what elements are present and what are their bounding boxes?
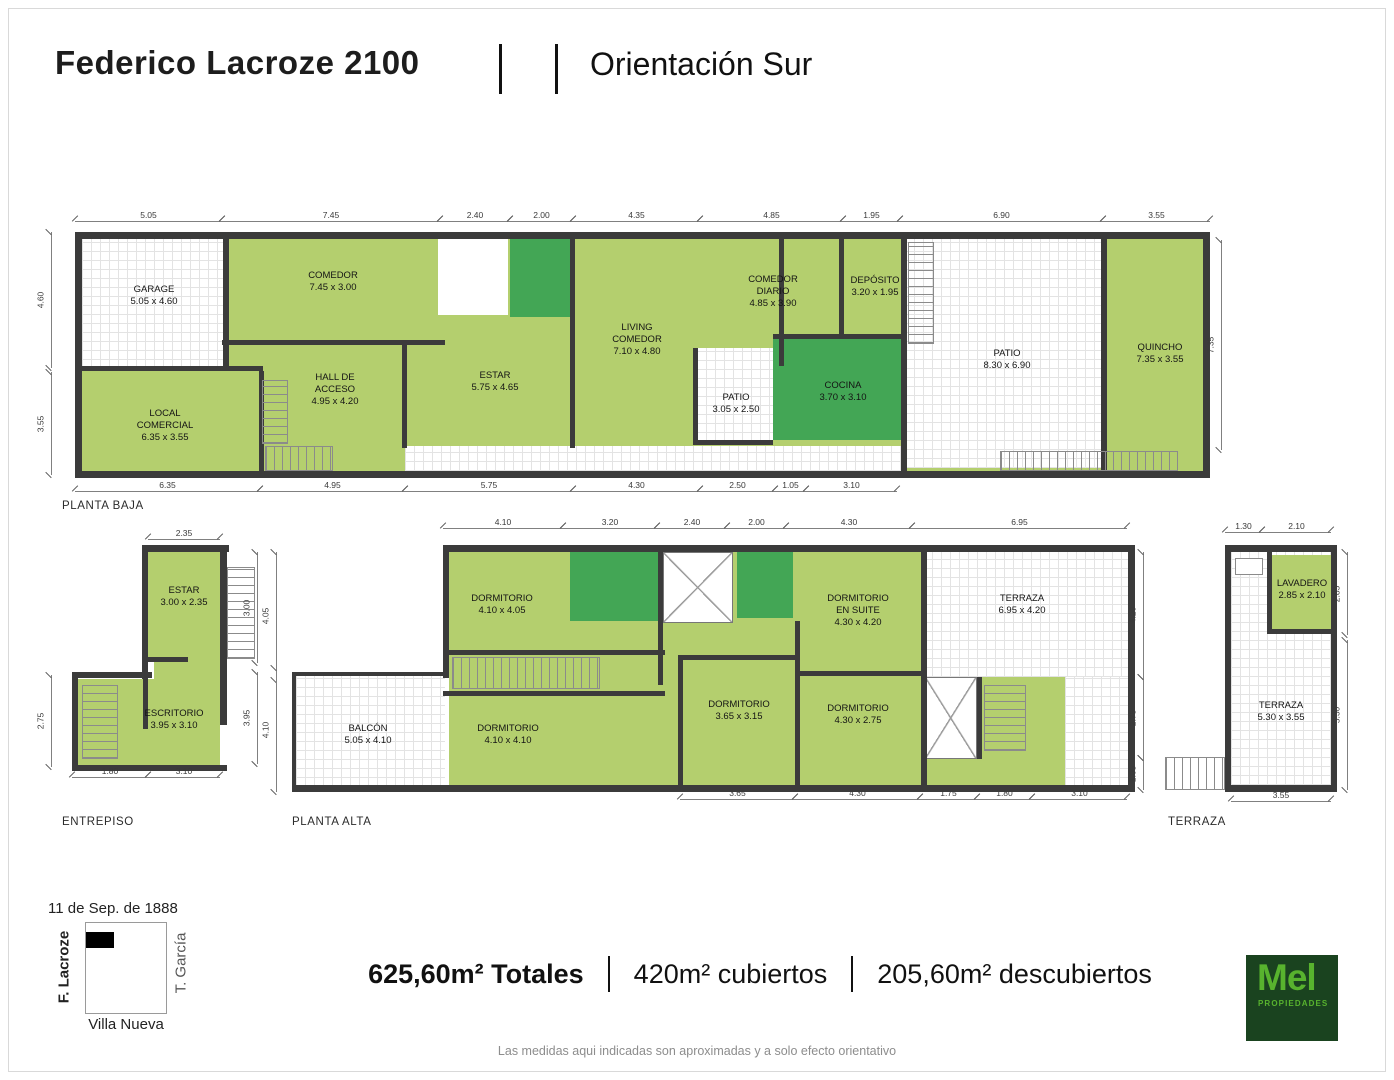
room-name: COMEDOR DIARIO xyxy=(748,274,798,298)
dimension-value: 1.80 xyxy=(102,766,119,776)
room-label-lavadero: LAVADERO2.85 x 2.10 xyxy=(1277,578,1327,602)
room-label-comedor-diario: COMEDOR DIARIO4.85 x 3.90 xyxy=(748,274,798,310)
room-dimensions: 5.30 x 3.55 xyxy=(1257,712,1304,724)
room-name: ESTAR xyxy=(471,370,518,382)
dimension-horizontal: 3.65 xyxy=(680,788,795,800)
wall xyxy=(658,545,663,685)
dimension-line xyxy=(573,491,700,492)
wall xyxy=(443,545,449,678)
dimension-horizontal: 3.55 xyxy=(1103,210,1210,222)
plan-planta-baja: GARAGE5.05 x 4.60COMEDOR7.45 x 3.00HALL … xyxy=(75,232,1210,478)
dimension-line xyxy=(563,528,657,529)
room-label-living-comedor: LIVING COMEDOR7.10 x 4.80 xyxy=(612,322,662,358)
dimension-horizontal: 1.05 xyxy=(775,480,806,492)
room-name: QUINCHO xyxy=(1136,342,1183,354)
wall xyxy=(443,545,1135,552)
room-label-cocina: COCINA3.70 x 3.10 xyxy=(819,380,866,404)
room-label-patio: PATIO8.30 x 6.90 xyxy=(983,348,1030,372)
dimension-horizontal: 3.20 xyxy=(563,517,657,529)
stairs xyxy=(262,380,288,444)
dimension-horizontal: 4.10 xyxy=(443,517,563,529)
dimension-value: 3.95 xyxy=(242,710,252,727)
plan-terraza: LAVADERO2.85 x 2.10TERRAZA5.30 x 3.55 xyxy=(1225,545,1337,792)
wall xyxy=(72,672,78,771)
stairs xyxy=(1000,451,1178,471)
plan-title-planta-baja: PLANTA BAJA xyxy=(62,500,144,512)
dimension-line xyxy=(260,491,405,492)
dimension-horizontal: 4.95 xyxy=(260,480,405,492)
dimension-value: 2.10 xyxy=(1288,521,1305,531)
dimension-line xyxy=(1103,221,1210,222)
agency-logo: Mel PROPIEDADES xyxy=(1246,955,1338,1041)
room-label-terraza: TERRAZA6.95 x 4.20 xyxy=(998,593,1045,617)
page-border-frame xyxy=(8,8,1386,1072)
dimension-value: 3.55 xyxy=(1148,210,1165,220)
dimension-line xyxy=(1143,677,1144,758)
dimension-line xyxy=(276,668,277,792)
dimension-horizontal: 3.10 xyxy=(148,766,220,778)
wall xyxy=(1267,552,1272,634)
wall xyxy=(443,691,665,696)
disclaimer-text: Las medidas aqui indicadas son aproximad… xyxy=(297,1044,1097,1058)
dimension-line xyxy=(1225,532,1262,533)
room-dimensions: 3.20 x 1.95 xyxy=(851,287,900,299)
dimension-vertical: 2.75 xyxy=(1130,677,1148,758)
dimension-line xyxy=(843,221,900,222)
dimension-line xyxy=(257,672,258,764)
room-dimensions: 7.45 x 3.00 xyxy=(308,282,358,294)
room-label-dormitorio: DORMITORIO3.65 x 3.15 xyxy=(708,699,770,723)
room-dimensions: 3.05 x 2.50 xyxy=(712,404,759,416)
dimension-value: 4.30 xyxy=(841,517,858,527)
room-name: DORMITORIO EN SUITE xyxy=(827,593,889,617)
room-dimensions: 5.75 x 4.65 xyxy=(471,382,518,394)
dimension-value: 6.90 xyxy=(993,210,1010,220)
wall xyxy=(570,239,575,448)
map-lot-marker xyxy=(86,932,114,948)
dimension-line xyxy=(1347,640,1348,790)
dimension-line xyxy=(75,221,222,222)
room-name: DORMITORIO xyxy=(471,593,533,605)
orientation-label: Orientación Sur xyxy=(590,46,812,83)
stairs xyxy=(908,242,934,344)
room-dimensions: 7.35 x 3.55 xyxy=(1136,354,1183,366)
dimension-value: 5.75 xyxy=(481,480,498,490)
dimension-value: 4.30 xyxy=(628,480,645,490)
room-dimensions: 5.05 x 4.10 xyxy=(344,735,391,747)
dimension-value: 3.55 xyxy=(36,415,46,432)
room-name: PATIO xyxy=(712,392,759,404)
room-dimensions: 4.10 x 4.05 xyxy=(471,605,533,617)
dimension-line xyxy=(920,799,977,800)
dimension-line xyxy=(51,675,52,767)
room-name: DORMITORIO xyxy=(827,703,889,715)
dimension-line xyxy=(257,552,258,663)
dimension-value: 4.85 xyxy=(763,210,780,220)
dimension-horizontal: 2.40 xyxy=(657,517,727,529)
dimension-value: 3.10 xyxy=(176,766,193,776)
dimension-vertical: 4.20 xyxy=(1130,552,1148,677)
stairs xyxy=(265,446,333,471)
dimension-horizontal: 4.85 xyxy=(700,210,843,222)
wall xyxy=(839,239,844,336)
header-divider-bar xyxy=(499,44,502,94)
shaft-area xyxy=(925,677,977,759)
wall xyxy=(148,545,229,552)
dimension-horizontal: 2.00 xyxy=(510,210,573,222)
plan-title-entrepiso: ENTREPISO xyxy=(62,816,134,828)
room-name: DEPÓSITO xyxy=(851,275,900,287)
dimension-line xyxy=(1143,758,1144,790)
patio-grid-area xyxy=(1065,677,1128,787)
room-dimensions: 3.00 x 2.35 xyxy=(160,597,207,609)
dimension-vertical: 2.85 xyxy=(1334,552,1352,635)
room-label-dormitorio: DORMITORIO4.10 x 4.10 xyxy=(477,723,539,747)
dimension-line xyxy=(51,232,52,368)
summary-divider-bar xyxy=(851,956,853,992)
dimension-line xyxy=(680,799,795,800)
room-dimensions: 7.10 x 4.80 xyxy=(612,346,662,358)
wall xyxy=(292,672,445,676)
dimension-line xyxy=(405,491,573,492)
dimension-horizontal: 6.35 xyxy=(75,480,260,492)
plan-planta-alta: DORMITORIO4.10 x 4.05DORMITORIO4.10 x 4.… xyxy=(292,545,1135,792)
room-dimensions: 3.95 x 3.10 xyxy=(145,720,204,732)
uncovered-area: 205,60m² descubiertos xyxy=(877,959,1152,990)
wall xyxy=(75,471,1210,478)
room-label-escritorio: ESCRITORIO3.95 x 3.10 xyxy=(145,708,204,732)
room-dimensions: 4.95 x 4.20 xyxy=(311,396,358,408)
room-label-estar: ESTAR5.75 x 4.65 xyxy=(471,370,518,394)
room-dimensions: 3.65 x 3.15 xyxy=(708,711,770,723)
room-dimensions: 4.10 x 4.10 xyxy=(477,735,539,747)
dimension-value: 2.40 xyxy=(684,517,701,527)
wall xyxy=(75,232,1210,239)
room-label-local-comercial: LOCAL COMERCIAL6.35 x 3.55 xyxy=(137,408,193,444)
dimension-value: 2.40 xyxy=(467,210,484,220)
dimension-line xyxy=(51,372,52,475)
dimension-line xyxy=(443,528,563,529)
dimension-value: 4.10 xyxy=(495,517,512,527)
dimension-line xyxy=(727,528,786,529)
dimension-value: 3.10 xyxy=(1071,788,1088,798)
room-name: TERRAZA xyxy=(998,593,1045,605)
stairs xyxy=(82,685,118,759)
map-street-bottom: Villa Nueva xyxy=(88,1016,164,1033)
dimension-line xyxy=(1231,801,1331,802)
fixture-box xyxy=(1235,558,1263,575)
dimension-value: 2.50 xyxy=(729,480,746,490)
floorplan-page: Federico Lacroze 2100 Orientación Sur GA… xyxy=(0,0,1394,1080)
wall xyxy=(75,366,263,371)
dimension-line xyxy=(700,491,775,492)
room-name: DORMITORIO xyxy=(477,723,539,735)
dimension-line xyxy=(148,777,220,778)
wall xyxy=(402,340,407,448)
dimension-horizontal: 5.75 xyxy=(405,480,573,492)
room-name: TERRAZA xyxy=(1257,700,1304,712)
plan-entrepiso: ESTAR3.00 x 2.35ESCRITORIO3.95 x 3.10 xyxy=(70,545,260,773)
wet-room-area xyxy=(510,239,574,317)
dimension-horizontal: 6.95 xyxy=(912,517,1127,529)
dimension-vertical: 3.95 xyxy=(244,672,262,764)
dimension-horizontal: 3.10 xyxy=(1032,788,1127,800)
dimension-value: 4.20 xyxy=(1128,606,1138,623)
wall xyxy=(795,671,925,676)
header-divider-bar xyxy=(555,44,558,94)
dimension-value: 1.75 xyxy=(940,788,957,798)
dimension-value: 5.30 xyxy=(1332,707,1342,724)
dimension-horizontal: 1.75 xyxy=(920,788,977,800)
dimension-line xyxy=(806,491,897,492)
room-dimensions: 4.85 x 3.90 xyxy=(748,298,798,310)
dimension-vertical: 1.05 xyxy=(1130,758,1148,790)
shaft-area xyxy=(663,552,733,623)
dimension-line xyxy=(977,799,1032,800)
map-date-label: 11 de Sep. de 1888 xyxy=(48,900,178,917)
dimension-horizontal: 3.55 xyxy=(1231,790,1331,802)
room-name: ESCRITORIO xyxy=(145,708,204,720)
covered-area: 420m² cubiertos xyxy=(634,959,828,990)
wall xyxy=(693,348,698,444)
dimension-line xyxy=(900,221,1103,222)
dimension-horizontal: 1.95 xyxy=(843,210,900,222)
dimension-horizontal: 4.35 xyxy=(573,210,700,222)
room-dimensions: 6.95 x 4.20 xyxy=(998,605,1045,617)
room-label-terraza: TERRAZA5.30 x 3.55 xyxy=(1257,700,1304,724)
room-dimensions: 2.85 x 2.10 xyxy=(1277,590,1327,602)
wall xyxy=(693,440,773,445)
open-area xyxy=(438,239,508,315)
dimension-horizontal: 2.50 xyxy=(700,480,775,492)
dimension-value: 2.75 xyxy=(36,713,46,730)
dimension-line xyxy=(775,491,806,492)
plan-title-planta-alta: PLANTA ALTA xyxy=(292,816,371,828)
dimension-line xyxy=(276,552,277,680)
dimension-value: 4.35 xyxy=(628,210,645,220)
wall xyxy=(678,655,683,785)
room-label-hall-de-acceso: HALL DE ACCESO4.95 x 4.20 xyxy=(311,372,358,408)
dimension-line xyxy=(1262,532,1331,533)
dimension-horizontal: 6.90 xyxy=(900,210,1103,222)
room-name: LOCAL COMERCIAL xyxy=(137,408,193,432)
dimension-vertical: 7.35 xyxy=(1208,240,1226,450)
dimension-horizontal: 4.30 xyxy=(795,788,920,800)
dimension-line xyxy=(75,491,260,492)
dimension-value: 4.05 xyxy=(261,608,271,625)
dimension-value: 6.95 xyxy=(1011,517,1028,527)
dimension-horizontal: 2.40 xyxy=(440,210,510,222)
dimension-vertical: 5.30 xyxy=(1334,640,1352,790)
room-dimensions: 8.30 x 6.90 xyxy=(983,360,1030,372)
dimension-horizontal: 1.30 xyxy=(1225,521,1262,533)
room-name: PATIO xyxy=(983,348,1030,360)
dimension-horizontal: 2.10 xyxy=(1262,521,1331,533)
dimension-value: 1.80 xyxy=(996,788,1013,798)
room-dimensions: 6.35 x 3.55 xyxy=(137,432,193,444)
map-street-right: T. García xyxy=(173,933,190,994)
wall xyxy=(795,621,800,785)
dimension-value: 3.20 xyxy=(602,517,619,527)
dimension-line xyxy=(222,221,440,222)
dimension-line xyxy=(700,221,843,222)
dimension-line xyxy=(1221,240,1222,450)
dimension-line xyxy=(1143,552,1144,677)
dimension-line xyxy=(912,528,1127,529)
room-dimensions: 4.30 x 4.20 xyxy=(827,617,889,629)
room-label-dep-sito: DEPÓSITO3.20 x 1.95 xyxy=(851,275,900,299)
room-label-balc-n: BALCÓN5.05 x 4.10 xyxy=(344,723,391,747)
dimension-horizontal: 2.00 xyxy=(727,517,786,529)
room-label-patio: PATIO3.05 x 2.50 xyxy=(712,392,759,416)
room-name: COMEDOR xyxy=(308,270,358,282)
dimension-value: 2.35 xyxy=(176,528,193,538)
dimension-value: 3.65 xyxy=(729,788,746,798)
room-dimensions: 5.05 x 4.60 xyxy=(130,296,177,308)
dimension-vertical: 4.60 xyxy=(38,232,56,368)
room-name: COCINA xyxy=(819,380,866,392)
dimension-value: 4.30 xyxy=(849,788,866,798)
dimension-line xyxy=(72,777,148,778)
dimension-value: 4.10 xyxy=(261,722,271,739)
dimension-value: 2.00 xyxy=(748,517,765,527)
wall xyxy=(443,650,665,655)
wall xyxy=(1101,232,1107,471)
room-name: GARAGE xyxy=(130,284,177,296)
room-name: DORMITORIO xyxy=(708,699,770,711)
dimension-value: 7.35 xyxy=(1206,337,1216,354)
dimension-value: 2.00 xyxy=(533,210,550,220)
room-label-dormitorio-en-suite: DORMITORIO EN SUITE4.30 x 4.20 xyxy=(827,593,889,629)
stairs xyxy=(984,685,1026,751)
dimension-line xyxy=(657,528,727,529)
map-street-left: F. Lacroze xyxy=(56,931,73,1004)
dimension-vertical: 4.05 xyxy=(263,552,281,680)
room-label-estar: ESTAR3.00 x 2.35 xyxy=(160,585,207,609)
wall xyxy=(1225,545,1231,792)
room-label-quincho: QUINCHO7.35 x 3.55 xyxy=(1136,342,1183,366)
dimension-line xyxy=(510,221,573,222)
dimension-line xyxy=(1032,799,1127,800)
wall xyxy=(678,655,800,660)
dimension-value: 3.10 xyxy=(843,480,860,490)
dimension-horizontal: 2.35 xyxy=(148,528,220,540)
dimension-vertical: 2.75 xyxy=(38,675,56,767)
dimension-value: 3.55 xyxy=(1273,790,1290,800)
dimension-value: 1.30 xyxy=(1235,521,1252,531)
stairs xyxy=(452,657,600,689)
dimension-horizontal: 4.30 xyxy=(786,517,912,529)
room-label-dormitorio: DORMITORIO4.10 x 4.05 xyxy=(471,593,533,617)
wall xyxy=(222,340,445,345)
wall xyxy=(292,672,296,789)
dimension-vertical: 4.10 xyxy=(263,668,281,792)
dimension-line xyxy=(786,528,912,529)
wall xyxy=(75,232,82,478)
room-name: ESTAR xyxy=(160,585,207,597)
wall xyxy=(1225,545,1337,552)
dimension-line xyxy=(795,799,920,800)
dimension-value: 2.85 xyxy=(1332,585,1342,602)
dimension-line xyxy=(1347,552,1348,635)
dimension-horizontal: 1.80 xyxy=(977,788,1032,800)
room-label-dormitorio: DORMITORIO4.30 x 2.75 xyxy=(827,703,889,727)
room-label-comedor: COMEDOR7.45 x 3.00 xyxy=(308,270,358,294)
room-label-garage: GARAGE5.05 x 4.60 xyxy=(130,284,177,308)
area-summary: 625,60m² Totales 420m² cubiertos 205,60m… xyxy=(340,956,1180,992)
dimension-value: 6.35 xyxy=(159,480,176,490)
wall xyxy=(72,672,152,678)
dimension-vertical: 3.55 xyxy=(38,372,56,475)
wall xyxy=(1267,629,1331,634)
agency-logo-name: Mel xyxy=(1257,957,1316,999)
wall xyxy=(901,232,907,471)
property-title: Federico Lacroze 2100 xyxy=(55,44,420,82)
wall xyxy=(773,334,903,339)
dimension-value: 7.45 xyxy=(323,210,340,220)
dimension-line xyxy=(440,221,510,222)
dimension-value: 1.05 xyxy=(782,480,799,490)
dimension-value: 1.95 xyxy=(863,210,880,220)
patio-grid-area xyxy=(405,446,905,471)
wet-room-area xyxy=(737,552,793,618)
dimension-value: 1.05 xyxy=(1128,766,1138,783)
dimension-horizontal: 7.45 xyxy=(222,210,440,222)
plan-title-terraza: TERRAZA xyxy=(1168,816,1226,828)
room-name: LAVADERO xyxy=(1277,578,1327,590)
wall xyxy=(921,545,927,785)
wet-room-area xyxy=(570,552,663,621)
dimension-value: 2.75 xyxy=(1128,709,1138,726)
dimension-horizontal: 3.10 xyxy=(806,480,897,492)
total-area: 625,60m² Totales xyxy=(368,959,584,990)
room-name: HALL DE ACCESO xyxy=(311,372,358,396)
dimension-value: 4.95 xyxy=(324,480,341,490)
room-name: LIVING COMEDOR xyxy=(612,322,662,346)
wall xyxy=(220,545,227,725)
dimension-horizontal: 4.30 xyxy=(573,480,700,492)
stairs xyxy=(1165,757,1225,790)
dimension-value: 5.05 xyxy=(140,210,157,220)
room-dimensions: 3.70 x 3.10 xyxy=(819,392,866,404)
summary-divider-bar xyxy=(608,956,610,992)
room-dimensions: 4.30 x 2.75 xyxy=(827,715,889,727)
dimension-line xyxy=(573,221,700,222)
room-name: BALCÓN xyxy=(344,723,391,735)
wall xyxy=(148,657,188,662)
dimension-value: 4.60 xyxy=(36,292,46,309)
agency-logo-subtitle: PROPIEDADES xyxy=(1258,999,1328,1008)
dimension-value: 3.00 xyxy=(242,599,252,616)
dimension-line xyxy=(148,539,220,540)
wall xyxy=(223,232,229,370)
dimension-horizontal: 5.05 xyxy=(75,210,222,222)
dimension-horizontal: 1.80 xyxy=(72,766,148,778)
wall xyxy=(977,677,982,759)
